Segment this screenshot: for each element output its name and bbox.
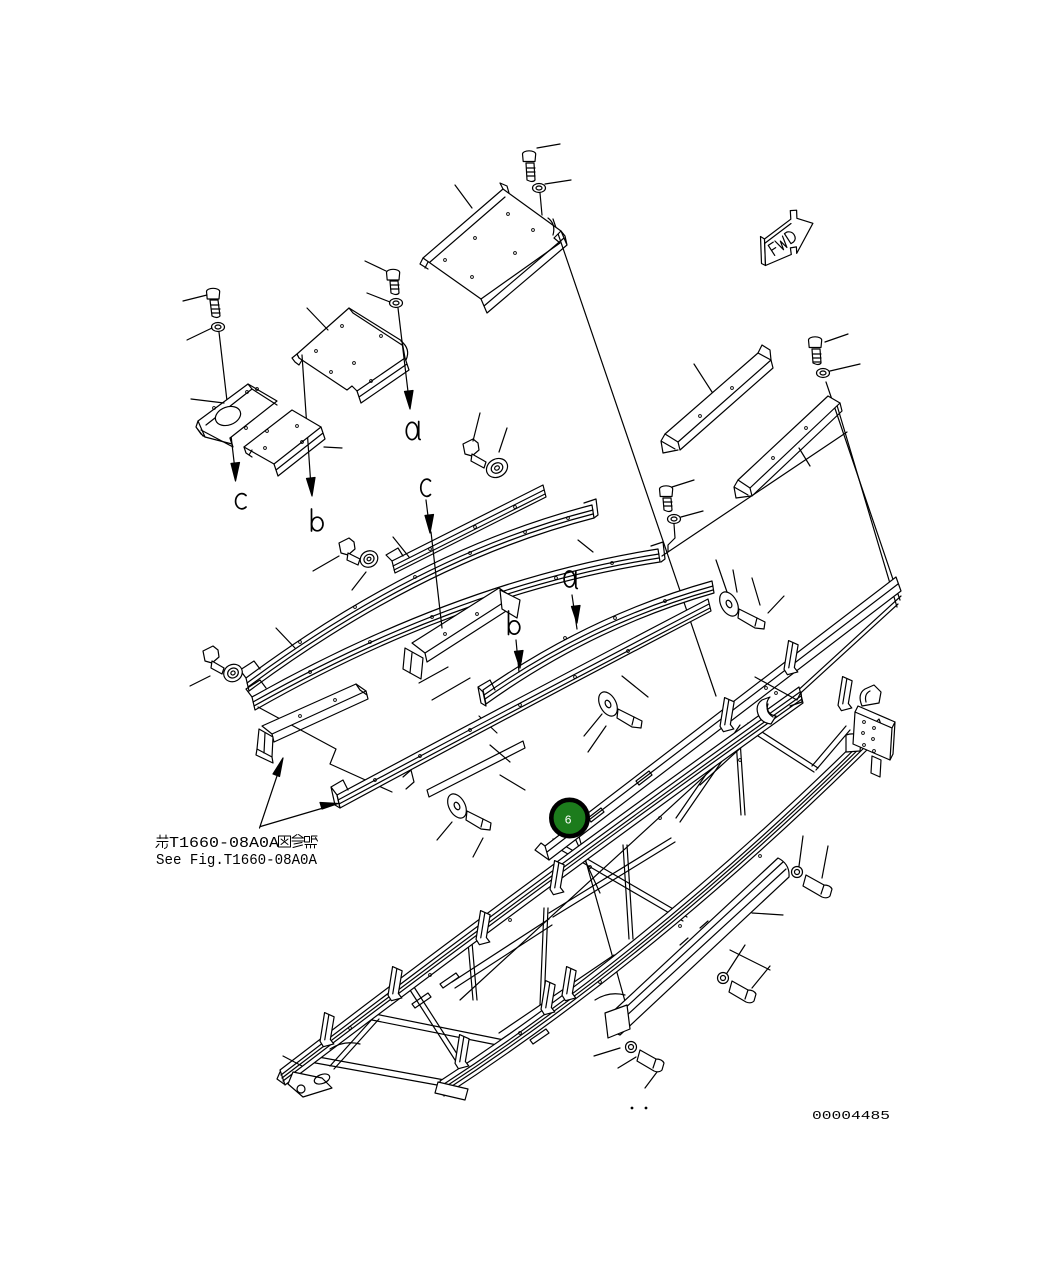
svg-text:6: 6	[565, 814, 572, 828]
svg-text:See Fig.T1660-08A0A: See Fig.T1660-08A0A	[156, 853, 317, 869]
svg-text:00004485: 00004485	[812, 1110, 890, 1123]
svg-text:T1660-08A0A: T1660-08A0A	[169, 836, 279, 852]
